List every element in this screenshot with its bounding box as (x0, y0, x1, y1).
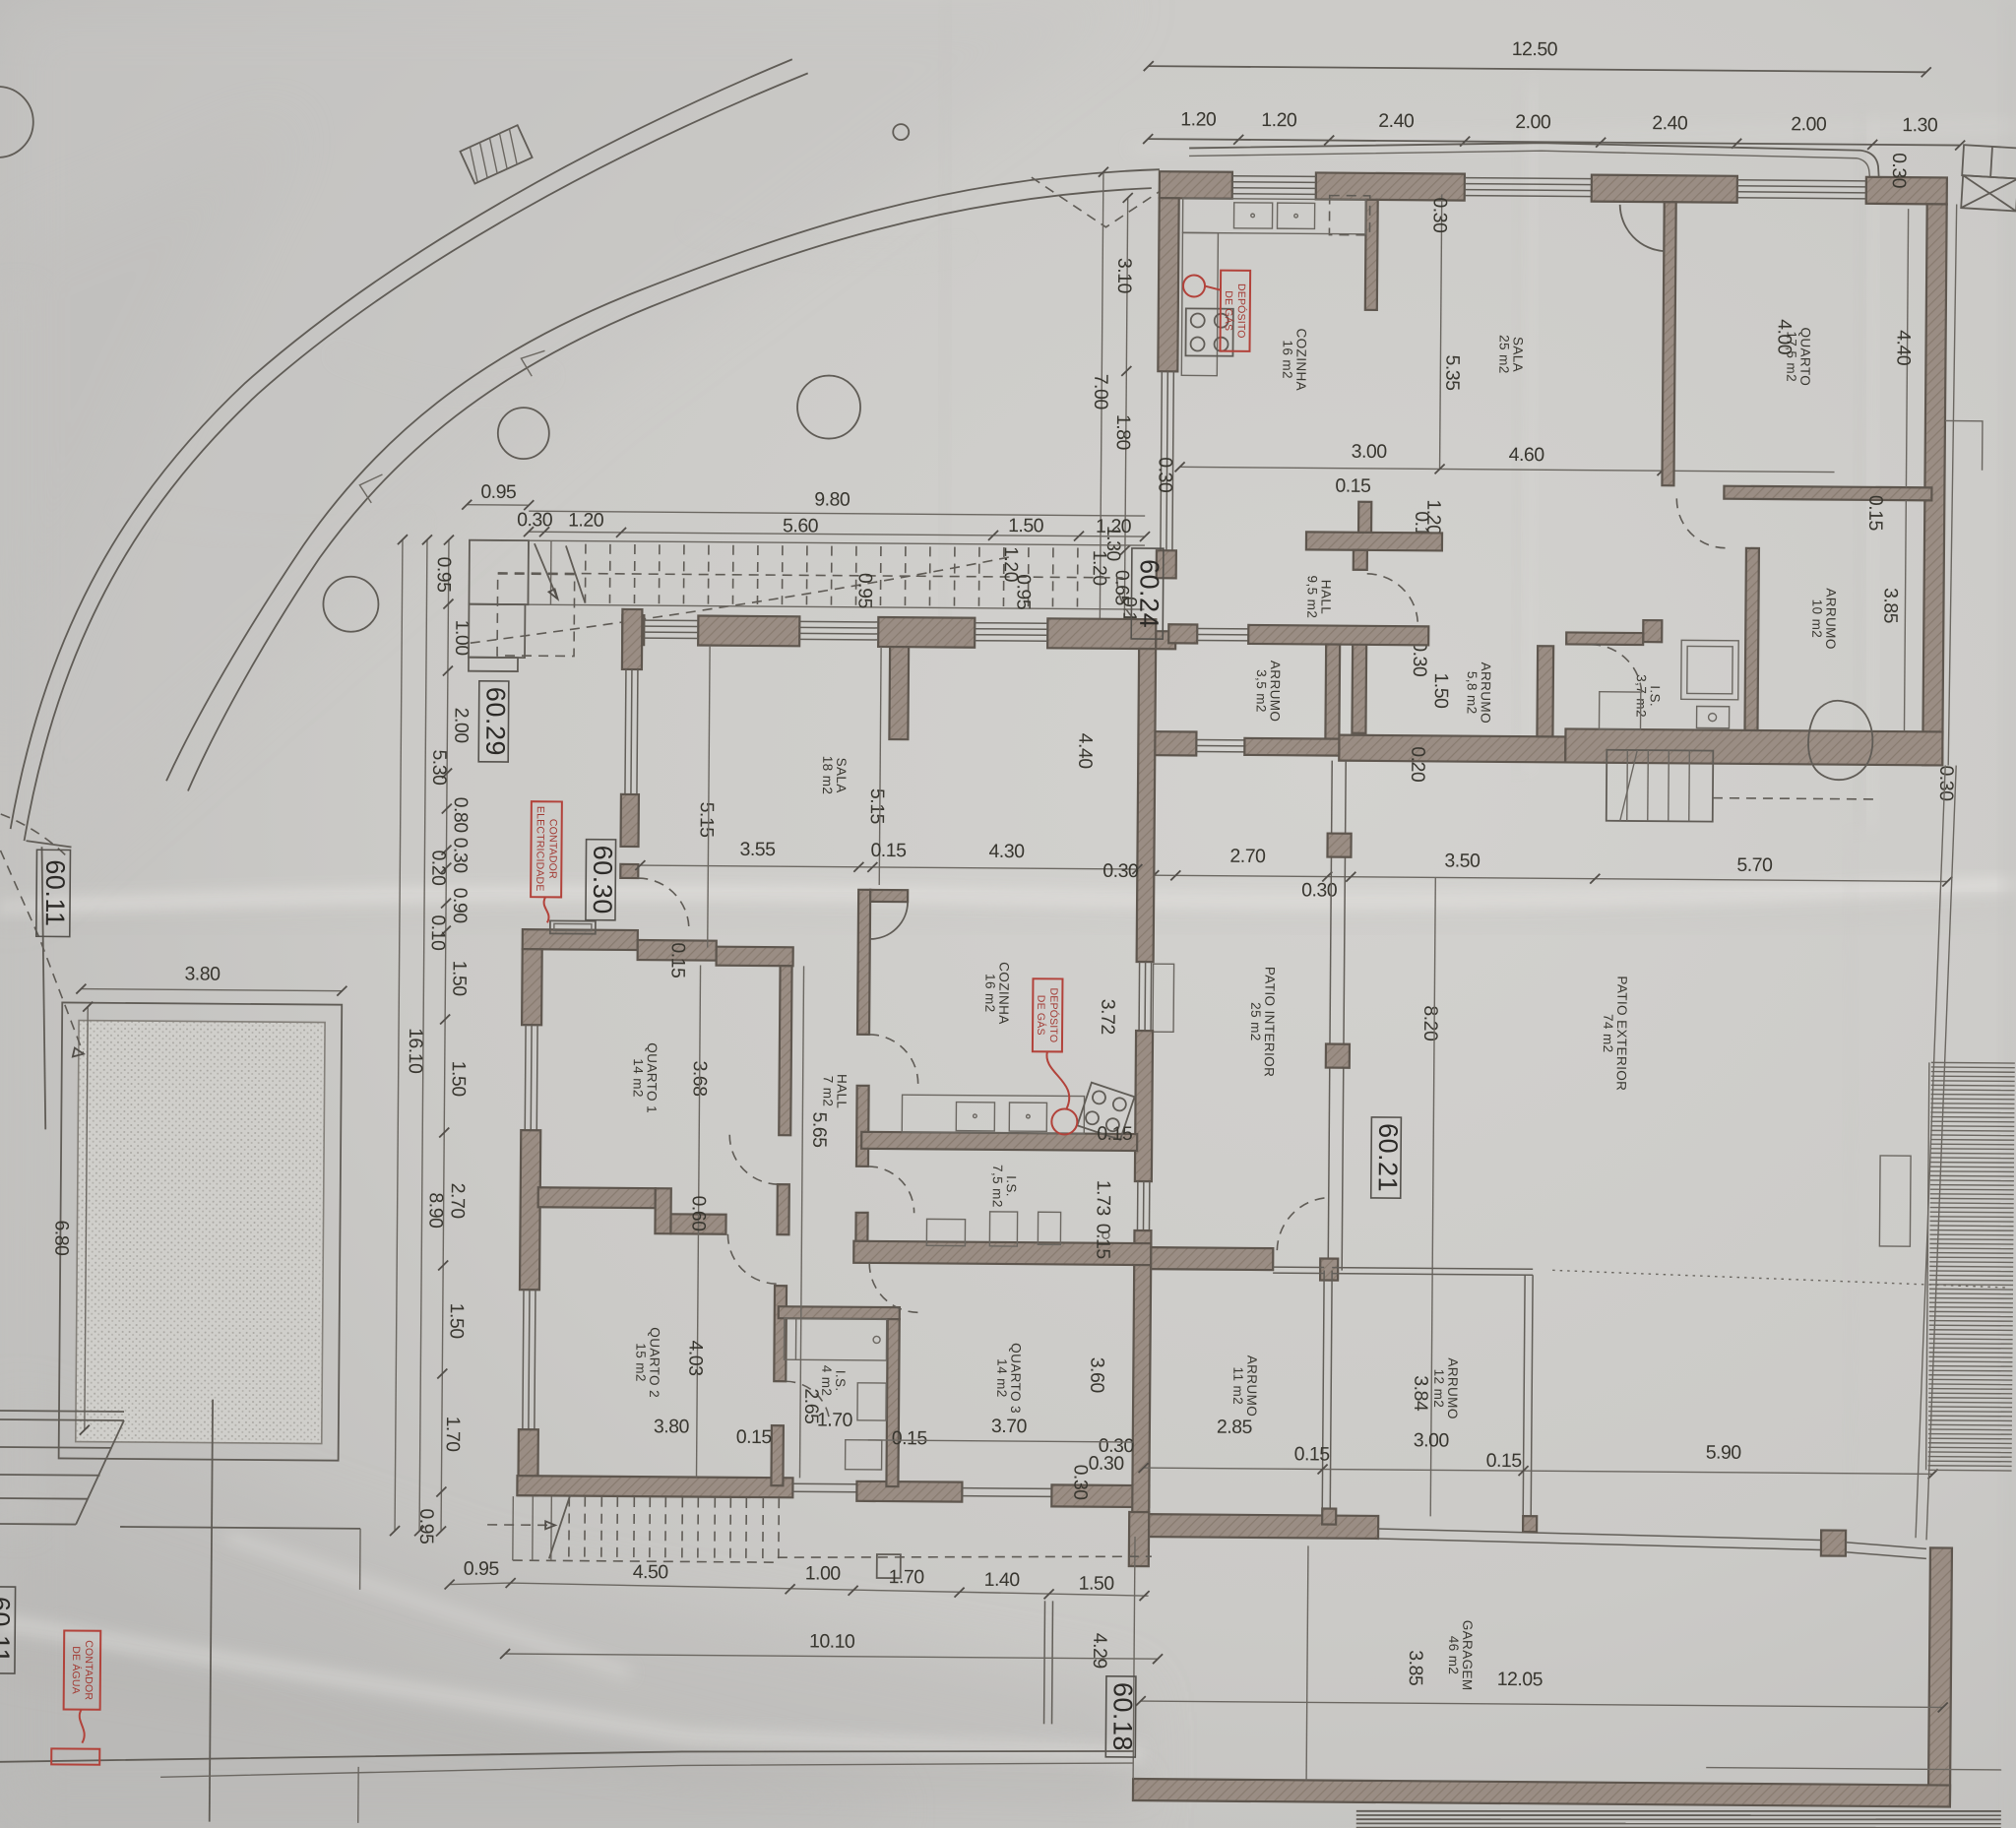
svg-text:0.15: 0.15 (736, 1426, 773, 1448)
svg-text:16.10: 16.10 (405, 1028, 426, 1074)
svg-text:HALL: HALL (1318, 580, 1333, 615)
svg-text:4.30: 4.30 (988, 841, 1025, 862)
svg-text:DE GÁS: DE GÁS (1035, 995, 1047, 1036)
svg-text:0.90: 0.90 (449, 888, 471, 924)
svg-text:1.50: 1.50 (448, 961, 470, 997)
svg-text:1.20: 1.20 (1096, 516, 1132, 537)
svg-text:DEPÓSITO: DEPÓSITO (1235, 284, 1248, 339)
svg-text:0.30: 0.30 (1154, 457, 1175, 493)
svg-text:0.30: 0.30 (1301, 879, 1338, 901)
svg-text:1.40: 1.40 (984, 1569, 1021, 1591)
svg-text:60.29: 60.29 (480, 687, 511, 756)
svg-text:2.00: 2.00 (450, 708, 472, 744)
svg-text:14 m2: 14 m2 (631, 1058, 646, 1098)
svg-text:8.20: 8.20 (1419, 1005, 1441, 1041)
svg-text:3.85: 3.85 (1405, 1650, 1426, 1686)
svg-text:0.15: 0.15 (892, 1427, 928, 1449)
svg-text:0.30: 0.30 (1409, 641, 1430, 677)
svg-text:3.60: 3.60 (1086, 1357, 1107, 1394)
svg-text:3.84: 3.84 (1410, 1375, 1431, 1412)
svg-text:14 m2: 14 m2 (994, 1358, 1009, 1398)
svg-text:COZINHA: COZINHA (996, 962, 1011, 1025)
svg-text:0.15: 0.15 (1335, 475, 1371, 497)
svg-text:25 m2: 25 m2 (1248, 1002, 1263, 1041)
svg-text:0.95: 0.95 (464, 1558, 500, 1580)
svg-text:CONTADOR: CONTADOR (83, 1640, 94, 1700)
svg-text:I.S.: I.S. (1648, 685, 1663, 707)
svg-text:74 m2: 74 m2 (1601, 1014, 1615, 1053)
svg-text:DEPÓSITO: DEPÓSITO (1047, 987, 1060, 1042)
svg-text:6.80: 6.80 (50, 1220, 72, 1256)
svg-text:1.20: 1.20 (1089, 550, 1110, 587)
svg-text:0.30: 0.30 (1888, 153, 1910, 189)
svg-text:0.15: 0.15 (1486, 1450, 1523, 1472)
svg-text:3.72: 3.72 (1097, 999, 1118, 1035)
svg-text:2.85: 2.85 (1217, 1417, 1253, 1438)
svg-text:4.60: 4.60 (1509, 444, 1545, 466)
svg-text:GARAGEM: GARAGEM (1460, 1620, 1476, 1691)
svg-text:I.S.: I.S. (1004, 1175, 1019, 1197)
svg-text:60.24: 60.24 (1134, 559, 1165, 628)
svg-text:4.03: 4.03 (684, 1340, 706, 1375)
svg-text:5.60: 5.60 (783, 515, 819, 536)
svg-text:3.85: 3.85 (1879, 588, 1901, 624)
svg-text:4.40: 4.40 (1074, 733, 1096, 770)
svg-text:12 m2: 12 m2 (1431, 1369, 1446, 1409)
svg-text:ELECTRICIDADE: ELECTRICIDADE (534, 806, 546, 892)
svg-text:3.10: 3.10 (1113, 258, 1135, 294)
svg-text:COZINHA: COZINHA (1293, 328, 1308, 391)
svg-text:12.50: 12.50 (1512, 38, 1558, 60)
svg-text:5.15: 5.15 (696, 802, 718, 839)
svg-text:3.70: 3.70 (991, 1416, 1028, 1437)
svg-text:1.20: 1.20 (1180, 108, 1217, 130)
svg-text:60.21: 60.21 (1373, 1123, 1404, 1192)
svg-text:3.50: 3.50 (1444, 850, 1480, 871)
svg-text:60.11: 60.11 (0, 1597, 15, 1664)
svg-text:0.80: 0.80 (450, 797, 472, 834)
svg-text:15 m2: 15 m2 (633, 1343, 648, 1382)
svg-text:SALA: SALA (1510, 337, 1525, 372)
svg-text:0.15: 0.15 (1097, 1123, 1133, 1145)
svg-text:DE GÁS: DE GÁS (1223, 290, 1235, 331)
svg-text:0.95: 0.95 (415, 1508, 437, 1544)
svg-text:1.50: 1.50 (1079, 1573, 1115, 1595)
svg-text:0.20: 0.20 (1407, 746, 1428, 783)
svg-text:7,5 m2: 7,5 m2 (990, 1165, 1005, 1208)
svg-text:0.20: 0.20 (427, 850, 449, 886)
svg-text:7.00: 7.00 (1090, 374, 1111, 410)
svg-text:16 m2: 16 m2 (1280, 340, 1294, 379)
svg-text:1.00: 1.00 (805, 1562, 842, 1584)
svg-text:1.70: 1.70 (817, 1409, 853, 1430)
svg-text:2.40: 2.40 (1652, 112, 1688, 134)
svg-text:11 m2: 11 m2 (1230, 1367, 1245, 1406)
svg-text:1.50: 1.50 (446, 1303, 468, 1340)
svg-text:5.30: 5.30 (428, 749, 450, 786)
svg-text:1.50: 1.50 (448, 1061, 470, 1098)
svg-text:0.15: 0.15 (1864, 495, 1886, 532)
svg-text:0.95: 0.95 (1012, 574, 1034, 610)
svg-text:8.90: 8.90 (424, 1192, 446, 1229)
svg-text:2.70: 2.70 (447, 1183, 469, 1220)
svg-text:0.30: 0.30 (1428, 197, 1450, 233)
svg-text:0.15: 0.15 (1092, 1224, 1113, 1260)
svg-text:2.00: 2.00 (1791, 113, 1827, 135)
svg-text:0.95: 0.95 (480, 481, 517, 503)
svg-text:1.20: 1.20 (568, 509, 604, 531)
svg-text:0.60: 0.60 (687, 1195, 709, 1231)
svg-text:60.18: 60.18 (1107, 1682, 1138, 1751)
svg-text:0.30: 0.30 (1102, 860, 1139, 882)
svg-text:12.05: 12.05 (1497, 1669, 1543, 1690)
svg-text:SALA: SALA (834, 758, 849, 793)
svg-text:10.10: 10.10 (809, 1630, 855, 1652)
svg-text:5,8 m2: 5,8 m2 (1465, 671, 1480, 715)
svg-text:ARRUMO: ARRUMO (1823, 588, 1838, 650)
svg-text:18 m2: 18 m2 (820, 756, 835, 795)
svg-text:25 m2: 25 m2 (1496, 335, 1511, 374)
svg-text:0.15: 0.15 (666, 942, 688, 978)
svg-text:QUARTO 3: QUARTO 3 (1008, 1343, 1024, 1414)
svg-text:0.30: 0.30 (1089, 1453, 1125, 1475)
svg-text:0.15: 0.15 (870, 840, 907, 861)
svg-text:1.20: 1.20 (1422, 499, 1444, 536)
svg-text:16 m2: 16 m2 (982, 974, 997, 1013)
svg-text:1.50: 1.50 (1008, 515, 1044, 536)
svg-text:5.15: 5.15 (866, 788, 888, 825)
svg-text:3.00: 3.00 (1414, 1429, 1450, 1451)
svg-text:ARRUMO: ARRUMO (1244, 1355, 1259, 1418)
svg-text:CONTADOR: CONTADOR (546, 819, 558, 879)
svg-text:0.95: 0.95 (433, 556, 455, 593)
svg-text:0.10: 0.10 (427, 914, 449, 951)
svg-text:0.95: 0.95 (853, 573, 875, 609)
svg-text:1.30: 1.30 (1902, 114, 1938, 136)
svg-text:9.80: 9.80 (814, 488, 850, 510)
svg-text:1.70: 1.70 (442, 1417, 464, 1453)
svg-text:ARRUMO: ARRUMO (1445, 1357, 1460, 1419)
svg-text:3.80: 3.80 (184, 963, 220, 984)
svg-text:DE ÁGUA: DE ÁGUA (70, 1646, 83, 1694)
svg-text:QUARTO 2: QUARTO 2 (647, 1327, 662, 1398)
svg-text:1.73: 1.73 (1093, 1180, 1114, 1216)
svg-text:2.40: 2.40 (1378, 110, 1415, 132)
svg-text:60.30: 60.30 (588, 846, 618, 914)
svg-text:7 m2: 7 m2 (820, 1076, 835, 1107)
svg-text:46 m2: 46 m2 (1446, 1636, 1461, 1675)
svg-text:3.55: 3.55 (739, 839, 776, 860)
svg-text:5.90: 5.90 (1706, 1442, 1742, 1464)
svg-text:9,5 m2: 9,5 m2 (1304, 576, 1319, 619)
svg-text:5.65: 5.65 (808, 1111, 830, 1148)
svg-text:1.80: 1.80 (1112, 414, 1134, 451)
svg-text:1.20: 1.20 (1261, 109, 1297, 131)
svg-text:10 m2: 10 m2 (1809, 599, 1824, 639)
svg-text:3.80: 3.80 (654, 1416, 690, 1437)
svg-text:3.00: 3.00 (1352, 441, 1388, 463)
svg-text:0.15: 0.15 (1294, 1443, 1331, 1465)
svg-text:5.70: 5.70 (1736, 854, 1773, 876)
svg-text:4.50: 4.50 (633, 1561, 669, 1583)
svg-text:17,5 m2: 17,5 m2 (1784, 331, 1798, 382)
svg-text:2.00: 2.00 (1515, 111, 1551, 133)
svg-text:I.S.: I.S. (833, 1370, 848, 1392)
svg-text:QUARTO 1: QUARTO 1 (644, 1042, 660, 1113)
svg-text:1.70: 1.70 (889, 1566, 925, 1588)
svg-text:5.35: 5.35 (1441, 354, 1463, 391)
svg-text:60.11: 60.11 (40, 859, 71, 926)
svg-text:4.40: 4.40 (1892, 330, 1914, 366)
svg-text:0.30: 0.30 (517, 509, 553, 531)
svg-text:4.29: 4.29 (1089, 1633, 1110, 1669)
svg-text:1.50: 1.50 (1430, 672, 1452, 709)
svg-text:3,5 m2: 3,5 m2 (1254, 669, 1269, 713)
svg-text:0.30: 0.30 (449, 838, 471, 874)
svg-text:2.70: 2.70 (1229, 846, 1266, 867)
svg-text:HALL: HALL (834, 1074, 849, 1109)
svg-text:0.30: 0.30 (1935, 765, 1957, 801)
